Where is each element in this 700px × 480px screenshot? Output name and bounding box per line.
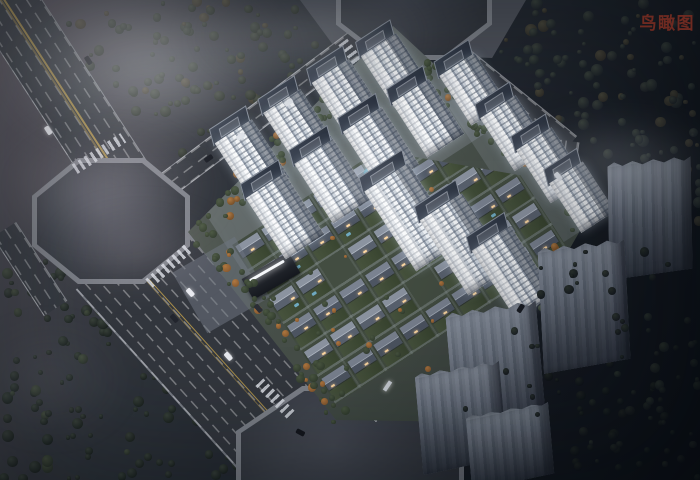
birdseye-label: 鸟瞰图 xyxy=(640,9,696,34)
cloud-fog-patch xyxy=(240,120,500,230)
cloud-fog-patch xyxy=(470,100,700,230)
cloud-fog-patch xyxy=(0,300,160,460)
clouds-fog-layer xyxy=(0,0,700,480)
aerial-birdseye-rendering: 鸟瞰图 xyxy=(0,0,700,480)
cloud-fog-patch xyxy=(20,190,260,310)
